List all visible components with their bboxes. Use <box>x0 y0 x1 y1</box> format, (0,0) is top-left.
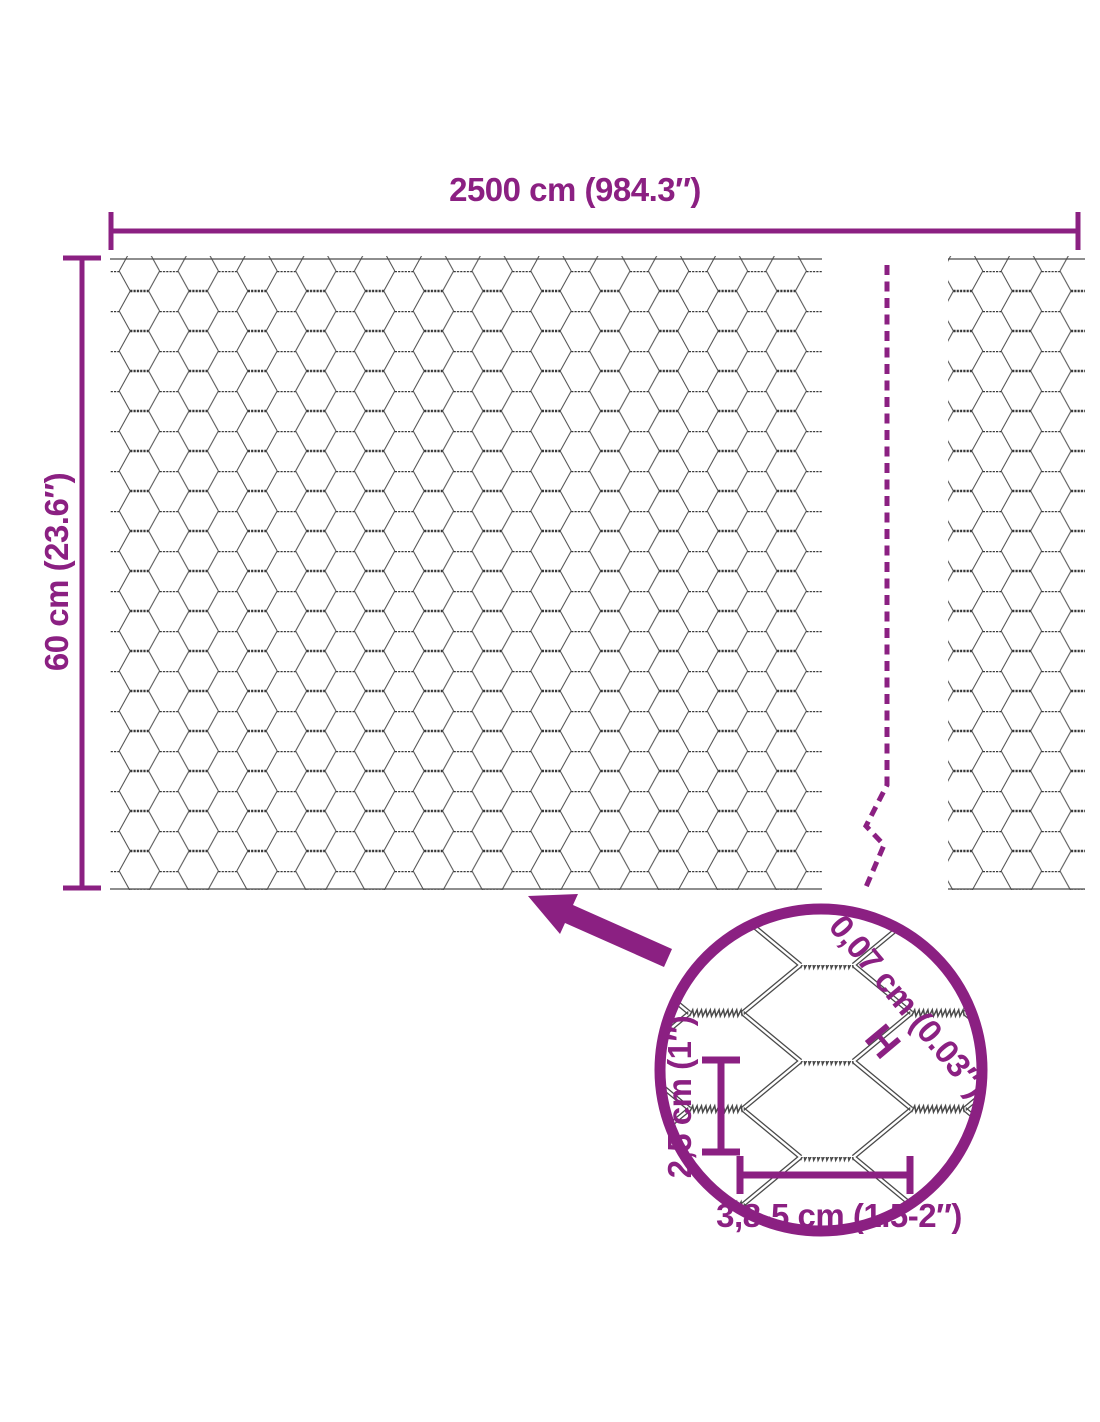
width-label: 2500 cm (984.3″) <box>449 171 701 209</box>
mesh-panel-continuation <box>948 256 1085 890</box>
height-label: 60 cm (23.6″) <box>38 473 76 671</box>
mesh-height-label: 2,5 cm (1″) <box>661 1016 699 1179</box>
mesh-width-label: 3,8-5 cm (1.5-2″) <box>716 1197 962 1235</box>
zoom-arrow-icon <box>528 894 672 967</box>
length-break-line <box>866 265 887 887</box>
mesh-panel-main <box>110 256 822 890</box>
width-dimension-line <box>111 212 1078 250</box>
